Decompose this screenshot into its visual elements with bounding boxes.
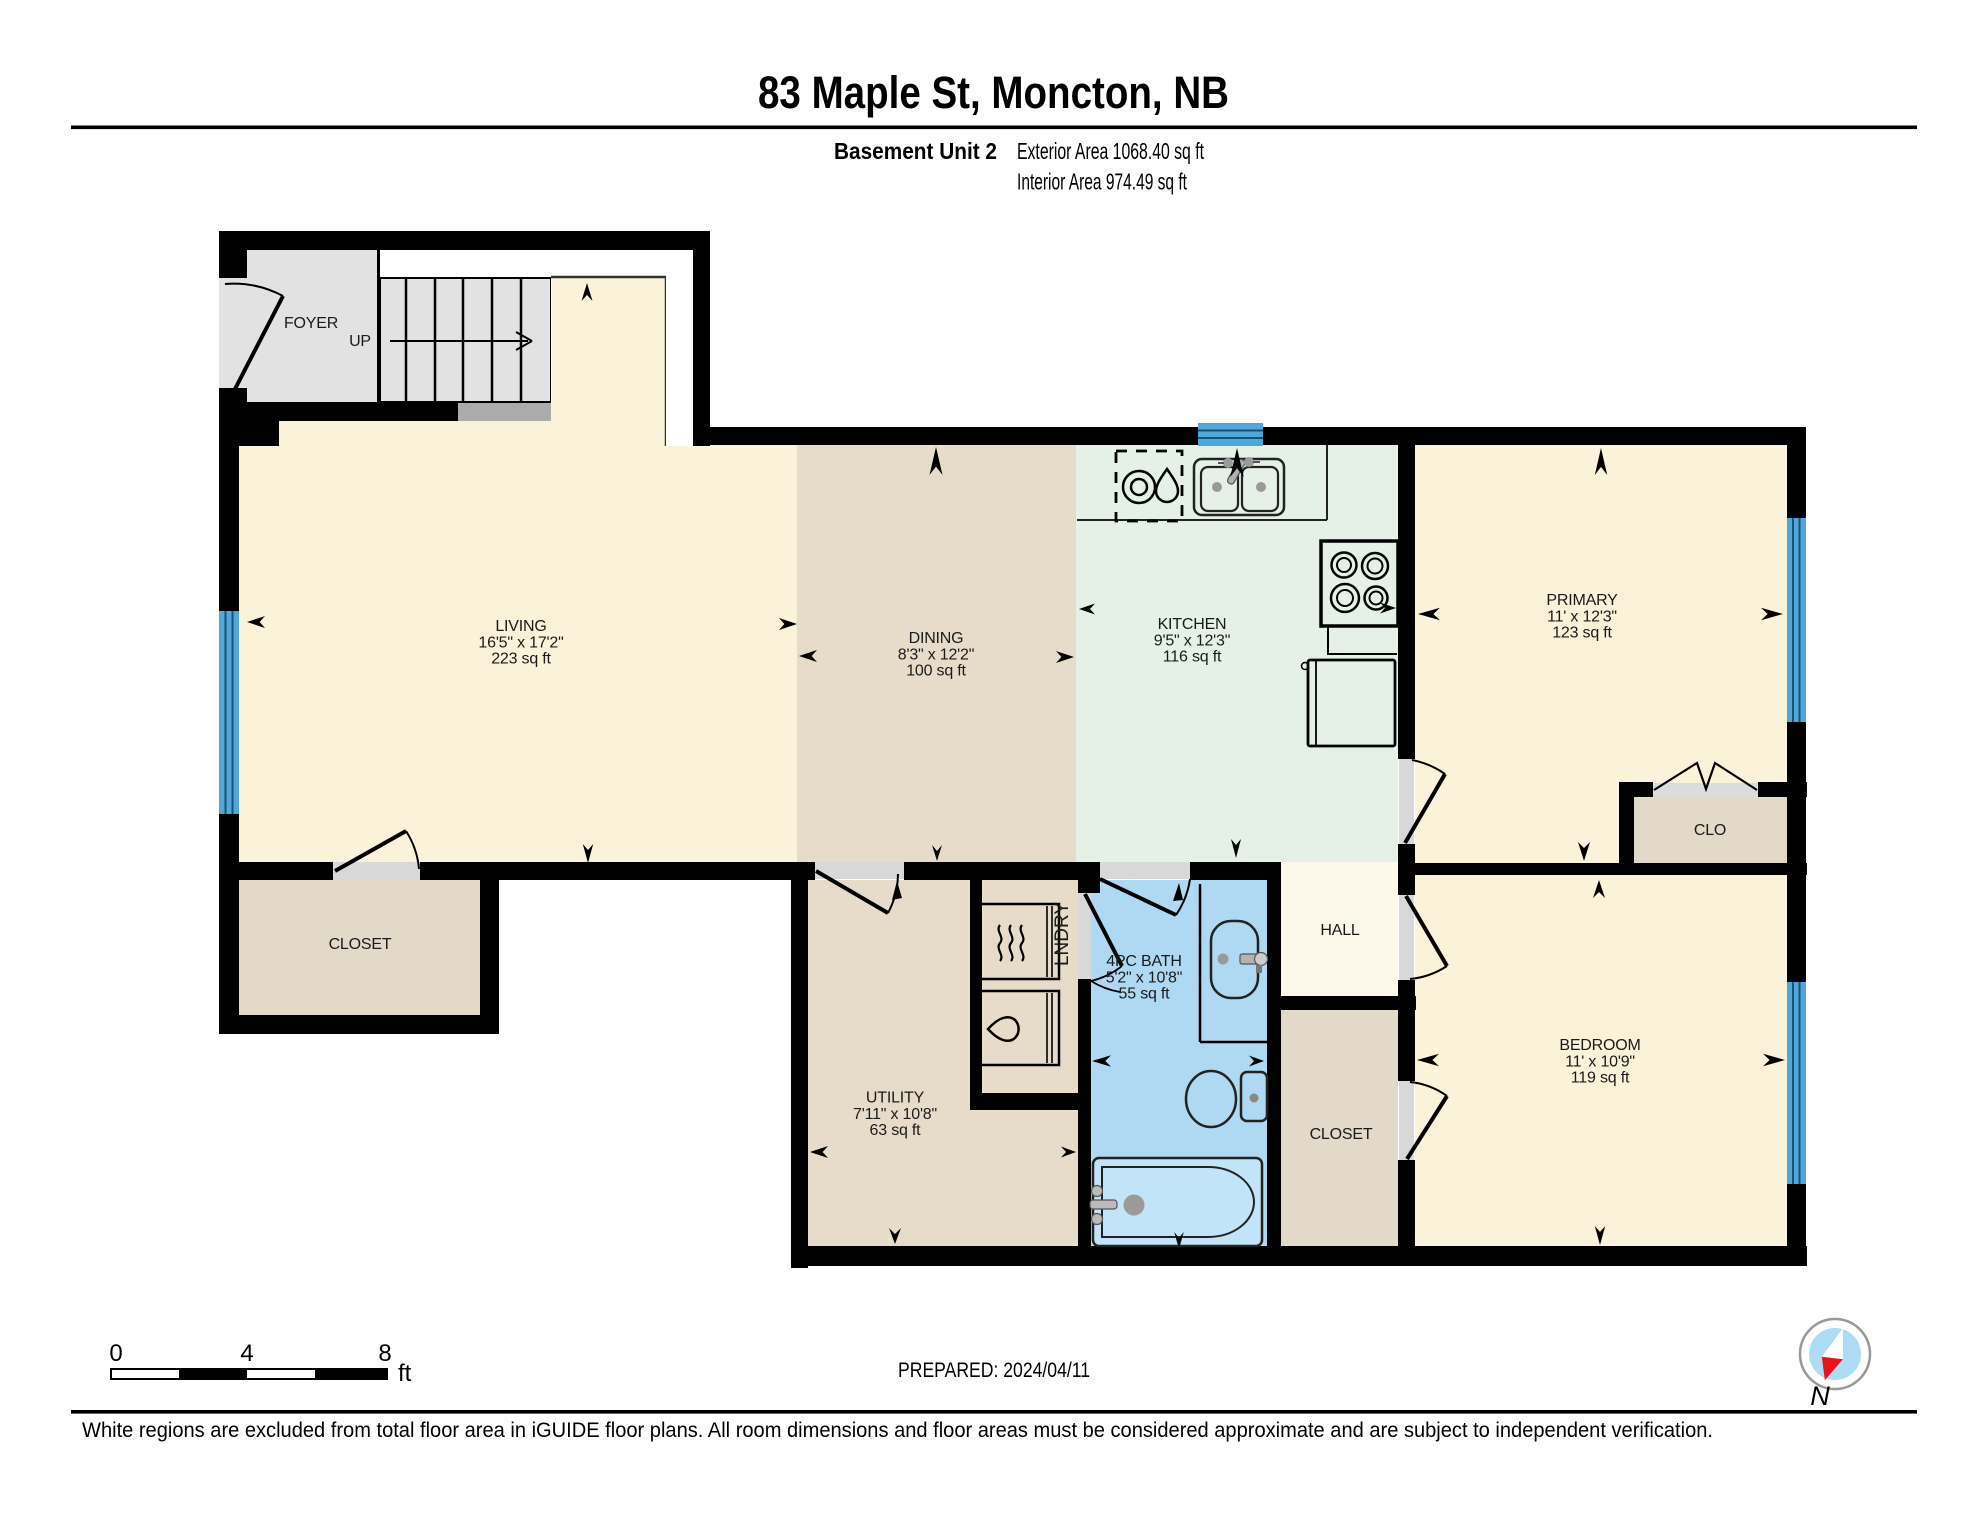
svg-text:223 sq ft: 223 sq ft [491,651,551,668]
svg-text:N: N [1810,1381,1830,1411]
svg-text:8'3" x 12'2": 8'3" x 12'2" [898,646,974,663]
svg-text:55 sq ft: 55 sq ft [1119,986,1171,1003]
svg-text:FOYER: FOYER [284,315,338,332]
svg-text:0: 0 [109,1340,122,1367]
svg-text:63 sq ft: 63 sq ft [870,1122,922,1139]
svg-text:Basement Unit 2: Basement Unit 2 [834,138,997,164]
svg-text:DINING: DINING [909,630,964,647]
svg-text:11' x 12'3": 11' x 12'3" [1547,608,1617,625]
svg-text:100 sq ft: 100 sq ft [906,663,966,680]
svg-text:9'5" x 12'3": 9'5" x 12'3" [1154,632,1230,649]
svg-text:116 sq ft: 116 sq ft [1163,649,1222,666]
svg-text:8: 8 [378,1340,391,1367]
svg-text:UTILITY: UTILITY [866,1090,925,1107]
svg-text:83 Maple St, Moncton, NB: 83 Maple St, Moncton, NB [758,67,1229,118]
svg-text:CLO: CLO [1694,822,1726,839]
svg-text:KITCHEN: KITCHEN [1158,616,1227,633]
svg-text:16'5" x 17'2": 16'5" x 17'2" [478,634,563,651]
svg-text:CLOSET: CLOSET [329,936,392,953]
svg-text:CLOSET: CLOSET [1310,1126,1373,1143]
svg-text:Exterior Area 1068.40 sq ft: Exterior Area 1068.40 sq ft [1017,138,1204,164]
svg-text:5'2" x 10'8": 5'2" x 10'8" [1106,969,1182,986]
svg-text:123 sq ft: 123 sq ft [1552,625,1612,642]
svg-text:PREPARED: 2024/04/11: PREPARED: 2024/04/11 [898,1359,1090,1382]
svg-text:ft: ft [398,1360,412,1387]
svg-text:LNDRY: LNDRY [1052,902,1073,966]
svg-text:Interior Area 974.49 sq ft: Interior Area 974.49 sq ft [1017,169,1187,195]
svg-text:4PC BATH: 4PC BATH [1106,953,1181,970]
svg-text:BEDROOM: BEDROOM [1559,1037,1640,1054]
svg-text:LIVING: LIVING [495,618,546,635]
svg-text:4: 4 [240,1340,253,1367]
svg-text:HALL: HALL [1320,922,1360,939]
svg-text:7'11" x 10'8": 7'11" x 10'8" [853,1106,937,1123]
svg-text:White regions are excluded fro: White regions are excluded from total fl… [82,1418,1713,1442]
svg-text:UP: UP [349,333,371,350]
svg-text:119 sq ft: 119 sq ft [1571,1070,1630,1087]
svg-text:PRIMARY: PRIMARY [1546,592,1618,609]
svg-text:11' x 10'9": 11' x 10'9" [1565,1053,1635,1070]
